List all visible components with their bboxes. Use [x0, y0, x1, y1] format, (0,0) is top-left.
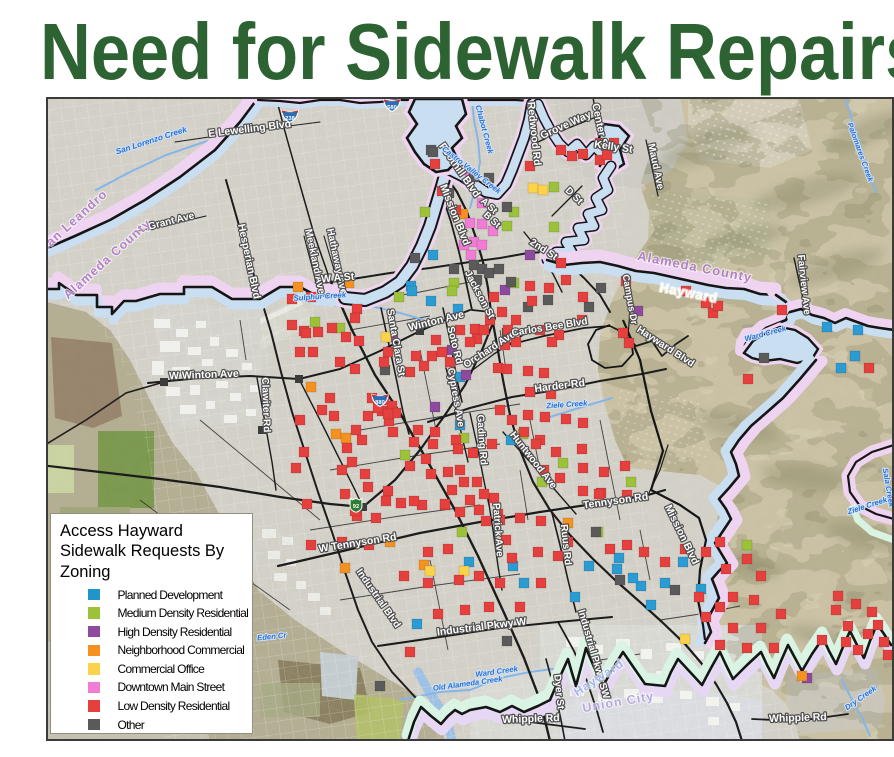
svg-text:92: 92: [353, 504, 359, 510]
svg-text:Whipple Rd: Whipple Rd: [502, 712, 560, 726]
svg-text:Whipple Rd: Whipple Rd: [769, 711, 827, 725]
svg-text:238: 238: [285, 116, 295, 122]
svg-text:580: 580: [387, 105, 397, 111]
svg-text:Clawiter Rd: Clawiter Rd: [259, 377, 272, 432]
svg-text:880: 880: [375, 400, 385, 406]
svg-text:W Winton Ave: W Winton Ave: [169, 368, 239, 382]
